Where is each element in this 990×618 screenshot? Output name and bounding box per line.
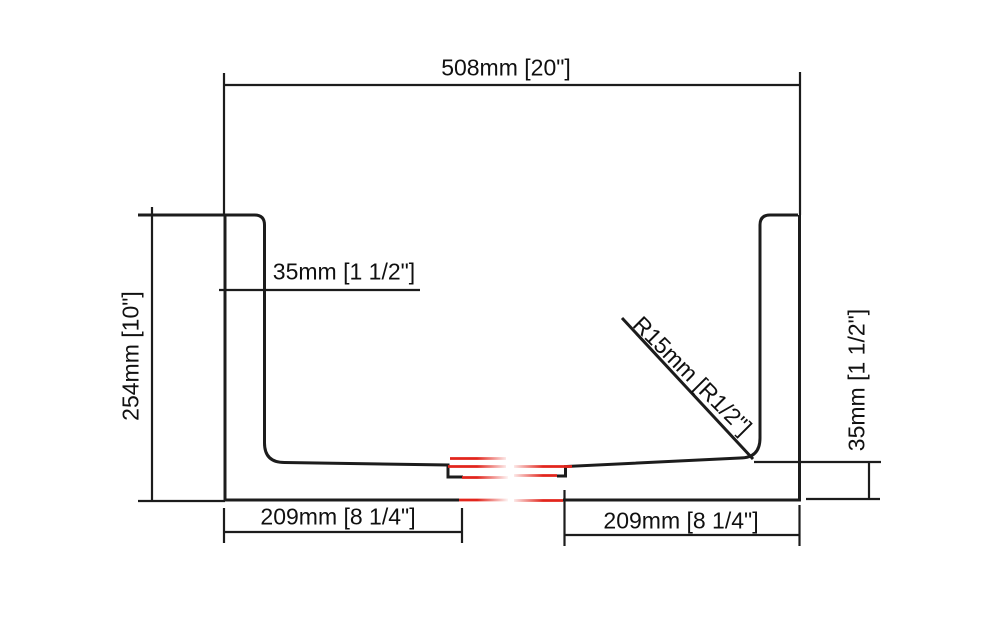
dim-254-label: 254mm [10"] [118,291,143,421]
dimension-lines [138,72,881,546]
dim-35-right-label: 35mm [1 1/2"] [844,309,869,451]
profile-left-flange [138,215,463,477]
dim-35-left-label: 35mm [1 1/2"] [273,259,415,284]
dim-508-label: 508mm [20"] [441,55,571,80]
drawing-canvas: 508mm [20"] 254mm [10"] 35mm [1 1/2"] R1… [0,0,990,618]
dim-209-right-label: 209mm [8 1/4"] [603,508,758,533]
drawing-linework [0,0,990,618]
break-lines [448,459,572,501]
dim-209-left-label: 209mm [8 1/4"] [260,504,415,529]
